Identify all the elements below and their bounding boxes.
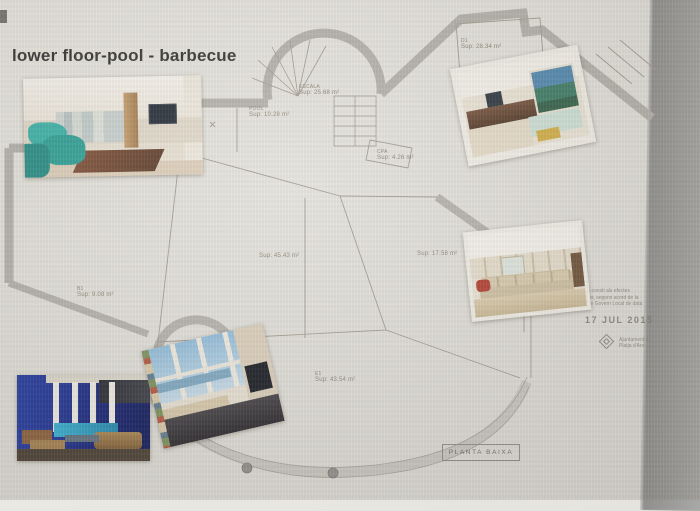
room-label-b1: B1Sup: 9.08 m² <box>77 286 114 298</box>
stamp-org: Ajuntament dePlatja d'Aro <box>619 337 651 349</box>
indoor-pool-photo <box>17 375 150 461</box>
room-label-e1: E1Sup: 43.54 m² <box>315 371 355 383</box>
plan-title-box: PLANTA BAIXA <box>442 444 520 461</box>
living-room-photo <box>23 75 203 178</box>
room-label-right: Sup: 17.58 m² <box>417 251 457 257</box>
room-label-central: Sup: 45.43 m² <box>259 253 299 259</box>
bedroom-photo <box>463 220 592 322</box>
room-label-d1: D1Sup: 28.34 m² <box>461 38 501 50</box>
stamp-date: 17 JUL 2015 <box>585 315 653 325</box>
room-label-pool: POOLSup: 10.28 m² <box>249 106 289 118</box>
tv-screen <box>148 103 177 123</box>
room-label-stair: ESCALASup: 25.68 m² <box>299 84 339 96</box>
page-title: lower floor-pool - barbecue <box>12 46 237 66</box>
room-label-cpa: CPASup: 4.26 m² <box>377 149 414 161</box>
